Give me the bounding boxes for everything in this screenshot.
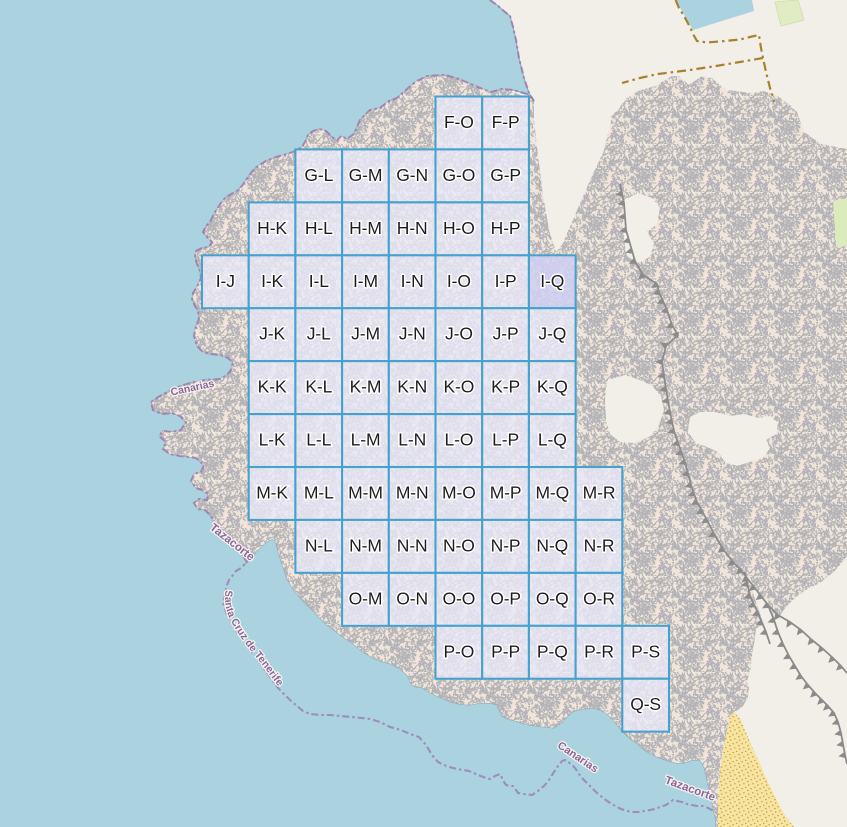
svg-text:G-P: G-P <box>490 165 521 185</box>
svg-text:I-K: I-K <box>261 271 283 291</box>
svg-text:N-N: N-N <box>397 535 428 555</box>
svg-text:O-O: O-O <box>443 588 476 608</box>
svg-text:I-P: I-P <box>495 271 517 291</box>
svg-text:J-N: J-N <box>399 324 426 344</box>
svg-text:P-Q: P-Q <box>537 641 568 661</box>
svg-text:O-Q: O-Q <box>536 588 569 608</box>
svg-text:M-R: M-R <box>583 483 616 503</box>
svg-text:L-N: L-N <box>398 430 426 450</box>
svg-text:L-O: L-O <box>444 430 473 450</box>
svg-text:M-O: M-O <box>442 483 476 503</box>
svg-text:K-P: K-P <box>491 377 520 397</box>
svg-text:K-L: K-L <box>305 377 332 397</box>
svg-text:M-P: M-P <box>490 483 522 503</box>
svg-text:M-N: M-N <box>396 483 429 503</box>
svg-text:N-P: N-P <box>491 535 521 555</box>
svg-text:K-N: K-N <box>397 377 427 397</box>
svg-text:N-M: N-M <box>349 535 382 555</box>
svg-text:O-M: O-M <box>349 588 383 608</box>
svg-text:P-S: P-S <box>631 641 660 661</box>
svg-text:H-K: H-K <box>257 218 287 238</box>
svg-text:L-L: L-L <box>306 430 331 450</box>
svg-text:N-L: N-L <box>305 535 333 555</box>
svg-text:I-N: I-N <box>401 271 424 291</box>
svg-text:K-O: K-O <box>443 377 474 397</box>
svg-text:G-O: G-O <box>443 165 476 185</box>
svg-text:I-M: I-M <box>353 271 378 291</box>
svg-text:M-K: M-K <box>256 483 288 503</box>
svg-text:M-L: M-L <box>304 483 334 503</box>
svg-text:H-N: H-N <box>397 218 428 238</box>
svg-text:L-M: L-M <box>351 430 381 450</box>
svg-text:J-P: J-P <box>493 324 519 344</box>
svg-text:N-R: N-R <box>584 535 615 555</box>
svg-text:K-Q: K-Q <box>537 377 568 397</box>
svg-text:P-O: P-O <box>443 641 474 661</box>
svg-text:G-N: G-N <box>396 165 428 185</box>
svg-text:Q-S: Q-S <box>630 694 661 714</box>
svg-text:F-O: F-O <box>444 112 474 132</box>
svg-text:H-L: H-L <box>305 218 333 238</box>
svg-text:K-M: K-M <box>350 377 382 397</box>
svg-text:I-O: I-O <box>447 271 471 291</box>
svg-text:N-O: N-O <box>443 535 475 555</box>
svg-text:J-M: J-M <box>351 324 380 344</box>
svg-text:P-P: P-P <box>491 641 520 661</box>
svg-text:H-P: H-P <box>491 218 521 238</box>
svg-text:J-K: J-K <box>259 324 285 344</box>
svg-text:P-R: P-R <box>584 641 614 661</box>
svg-text:L-K: L-K <box>259 430 286 450</box>
svg-text:J-Q: J-Q <box>538 324 566 344</box>
svg-text:O-N: O-N <box>396 588 428 608</box>
svg-text:K-K: K-K <box>258 377 287 397</box>
svg-text:J-L: J-L <box>307 324 331 344</box>
svg-text:G-M: G-M <box>349 165 383 185</box>
svg-text:I-J: I-J <box>216 271 235 291</box>
svg-text:G-L: G-L <box>304 165 333 185</box>
svg-text:J-O: J-O <box>445 324 473 344</box>
svg-text:H-M: H-M <box>349 218 382 238</box>
svg-text:M-M: M-M <box>348 483 383 503</box>
svg-text:L-Q: L-Q <box>538 430 567 450</box>
svg-text:M-Q: M-Q <box>535 483 569 503</box>
svg-text:H-O: H-O <box>443 218 475 238</box>
svg-text:O-R: O-R <box>583 588 615 608</box>
svg-text:I-L: I-L <box>309 271 329 291</box>
svg-text:N-Q: N-Q <box>536 535 568 555</box>
svg-text:O-P: O-P <box>490 588 521 608</box>
svg-text:I-Q: I-Q <box>540 271 564 291</box>
svg-text:L-P: L-P <box>492 430 519 450</box>
svg-text:F-P: F-P <box>492 112 520 132</box>
